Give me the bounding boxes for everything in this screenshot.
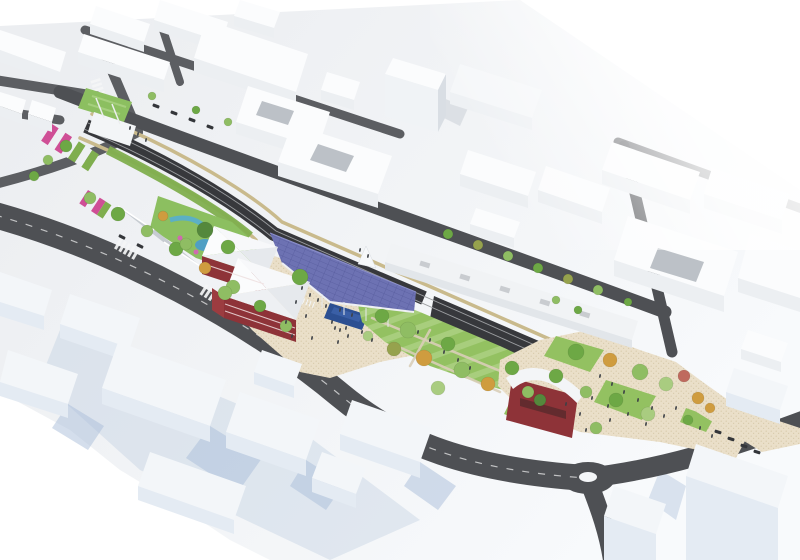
tree [148, 92, 156, 100]
tree [400, 322, 416, 338]
tree [221, 240, 235, 254]
tree [218, 286, 232, 300]
tree [224, 118, 232, 126]
tree [624, 298, 632, 306]
tree [84, 192, 96, 204]
tree [503, 251, 513, 261]
tree [29, 171, 39, 181]
tree [593, 285, 603, 295]
tree [641, 407, 655, 421]
tree [678, 370, 690, 382]
tree [431, 381, 445, 395]
tree [192, 106, 200, 114]
tree [375, 309, 389, 323]
tree [574, 306, 582, 314]
tree [481, 377, 495, 391]
tree [705, 403, 715, 413]
tree [416, 350, 432, 366]
tree [563, 274, 573, 284]
tree [199, 262, 211, 274]
tree [609, 393, 623, 407]
tree [454, 362, 470, 378]
tree [580, 386, 592, 398]
tree [292, 269, 308, 285]
tree [590, 422, 602, 434]
tree [603, 353, 617, 367]
masterplan-scene-canvas [0, 0, 800, 560]
tree [141, 225, 153, 237]
tree [197, 222, 213, 238]
tree [254, 300, 266, 312]
tree [387, 342, 401, 356]
tree [180, 238, 192, 250]
tree [549, 369, 563, 383]
tree [659, 377, 673, 391]
tree [534, 394, 546, 406]
roundabout-island [579, 472, 597, 482]
masterplan-aerial-rendering [0, 0, 800, 560]
tree [158, 211, 168, 221]
tree [522, 386, 534, 398]
tree [683, 415, 693, 425]
tree [568, 344, 584, 360]
tree [632, 364, 648, 380]
tree [533, 263, 543, 273]
tree [43, 155, 53, 165]
tree [692, 392, 704, 404]
tree [441, 337, 455, 351]
flower-bed-2 [194, 250, 199, 255]
edge-fade-overlay [430, 0, 800, 250]
tree [505, 361, 519, 375]
tree [111, 207, 125, 221]
tree [552, 296, 560, 304]
tree [60, 140, 72, 152]
